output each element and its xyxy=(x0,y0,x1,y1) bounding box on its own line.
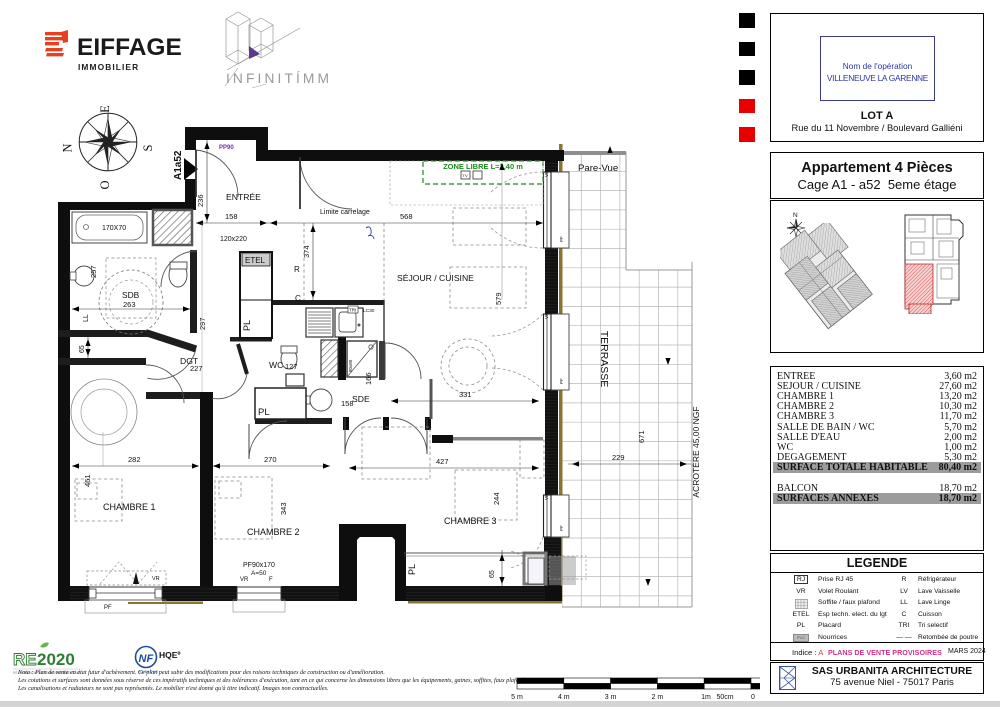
svg-text:80x80: 80x80 xyxy=(348,359,353,372)
svg-text:F: F xyxy=(269,577,273,583)
svg-text:120x220: 120x220 xyxy=(220,236,247,243)
svg-text:PL: PL xyxy=(242,320,252,331)
svg-text:RE: RE xyxy=(13,650,37,669)
svg-text:229: 229 xyxy=(612,453,625,462)
svg-text:PL: PL xyxy=(258,407,270,418)
svg-text:N: N xyxy=(793,212,798,219)
svg-text:INFINITÍMM: INFINITÍMM xyxy=(226,70,332,86)
svg-text:427: 427 xyxy=(436,457,449,466)
svg-text:VR: VR xyxy=(544,170,549,177)
svg-text:282: 282 xyxy=(128,455,141,464)
svg-text:3 m: 3 m xyxy=(605,694,617,701)
svg-text:ZONE LIBRE L=2,40 m: ZONE LIBRE L=2,40 m xyxy=(443,162,523,171)
svg-text:244: 244 xyxy=(492,492,501,505)
svg-text:TV: TV xyxy=(463,173,468,178)
svg-text:S: S xyxy=(141,144,155,151)
svg-text:CHAMBRE 3: CHAMBRE 3 xyxy=(444,516,497,526)
svg-text:CHAMBRE 2: CHAMBRE 2 xyxy=(247,527,300,537)
svg-text:579: 579 xyxy=(494,292,503,305)
svg-text:158: 158 xyxy=(341,399,354,408)
svg-text:PF: PF xyxy=(559,525,564,531)
svg-text:TRI: TRI xyxy=(349,308,356,313)
svg-text:TERRASSE: TERRASSE xyxy=(598,331,610,388)
svg-text:SÉJOUR / CUISINE: SÉJOUR / CUISINE xyxy=(397,273,474,283)
svg-text:SDB: SDB xyxy=(122,290,140,300)
svg-text:PL: PL xyxy=(407,564,417,575)
svg-text:170X70: 170X70 xyxy=(102,225,126,232)
svg-text:NF: NF xyxy=(139,653,154,665)
svg-text:VR: VR xyxy=(544,312,549,319)
svg-text:166: 166 xyxy=(364,372,373,385)
svg-text:5 m: 5 m xyxy=(511,694,523,701)
svg-text:E: E xyxy=(98,105,112,113)
svg-text:CHAMBRE 1: CHAMBRE 1 xyxy=(103,502,156,512)
svg-text:R: R xyxy=(294,265,300,274)
svg-text:343: 343 xyxy=(279,502,288,515)
svg-text:C: C xyxy=(295,294,301,303)
svg-text:PF90x170: PF90x170 xyxy=(243,562,275,569)
svg-text:PF: PF xyxy=(104,605,112,611)
svg-text:O: O xyxy=(98,180,112,189)
svg-text:IMMOBILIER: IMMOBILIER xyxy=(78,62,139,72)
svg-text:1m: 1m xyxy=(701,694,711,701)
svg-text:671: 671 xyxy=(637,430,646,443)
svg-text:65: 65 xyxy=(79,345,86,353)
svg-text:257: 257 xyxy=(89,265,98,278)
svg-text:127: 127 xyxy=(285,362,298,371)
svg-text:LC30: LC30 xyxy=(363,308,375,314)
svg-text:VR: VR xyxy=(240,577,249,583)
svg-text:A1a52: A1a52 xyxy=(173,150,184,180)
svg-text:331: 331 xyxy=(459,390,472,399)
svg-text:EIFFAGE: EIFFAGE xyxy=(77,34,182,61)
svg-text:263: 263 xyxy=(123,300,136,309)
svg-text:4 m: 4 m xyxy=(558,694,570,701)
svg-text:236: 236 xyxy=(196,194,205,207)
svg-text:227: 227 xyxy=(190,364,203,373)
svg-text:50cm: 50cm xyxy=(716,694,733,701)
svg-text:PF: PF xyxy=(559,378,564,384)
svg-text:158: 158 xyxy=(225,212,238,221)
svg-text:2020: 2020 xyxy=(37,650,75,669)
svg-text:LL: LL xyxy=(83,314,90,322)
svg-text:Limite carrelage: Limite carrelage xyxy=(320,209,370,216)
svg-text:VR: VR xyxy=(152,576,160,582)
svg-text:270: 270 xyxy=(264,455,277,464)
svg-text:ETEL: ETEL xyxy=(245,256,266,265)
svg-text:374: 374 xyxy=(302,245,311,258)
svg-text:ENTRÉE: ENTRÉE xyxy=(226,192,261,202)
svg-text:ACROTÈRE 45,00 NGF: ACROTÈRE 45,00 NGF xyxy=(691,406,701,497)
svg-text:VR: VR xyxy=(544,493,549,500)
svg-text:WC: WC xyxy=(269,360,283,370)
svg-text:65: 65 xyxy=(489,570,496,578)
svg-text:461: 461 xyxy=(83,474,92,487)
svg-text:0: 0 xyxy=(751,694,755,701)
svg-text:PF: PF xyxy=(559,236,564,242)
svg-text:N: N xyxy=(61,143,75,152)
svg-text:PP90: PP90 xyxy=(219,145,234,151)
svg-text:A=50: A=50 xyxy=(251,570,267,577)
svg-text:HQEº: HQEº xyxy=(159,650,181,660)
svg-text:Pare-Vue: Pare-Vue xyxy=(578,163,618,174)
svg-text:568: 568 xyxy=(400,212,413,221)
svg-text:SDE: SDE xyxy=(352,394,370,404)
svg-text:297: 297 xyxy=(198,317,207,330)
svg-text:2 m: 2 m xyxy=(652,694,664,701)
